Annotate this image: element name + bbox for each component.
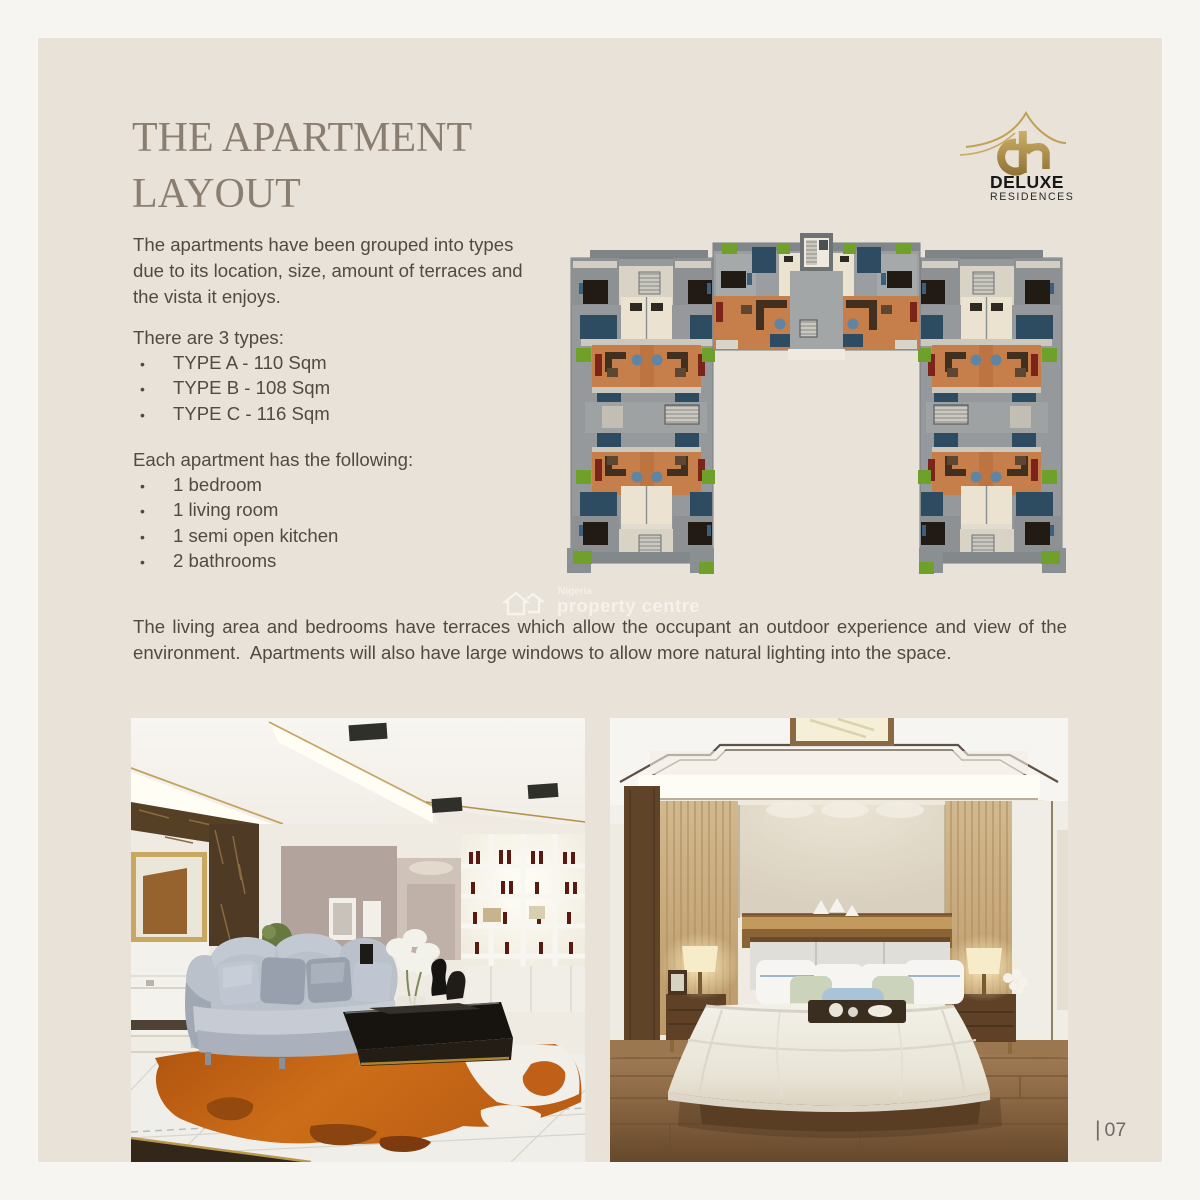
svg-text:property centre: property centre xyxy=(557,595,700,616)
svg-text:RESIDENCES: RESIDENCES xyxy=(990,191,1074,203)
svg-text:DELUXE: DELUXE xyxy=(990,172,1064,192)
